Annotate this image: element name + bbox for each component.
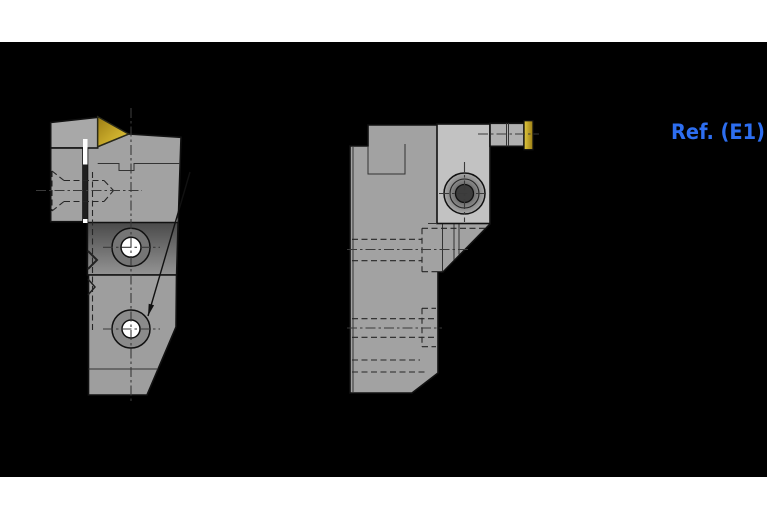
front-gap-dark bbox=[83, 165, 88, 220]
front-gap-white-top bbox=[83, 139, 88, 165]
front-gap-white-bottom bbox=[83, 219, 88, 223]
front-top-bar bbox=[51, 117, 98, 148]
front-rear-block bbox=[51, 148, 83, 222]
technical-drawing-canvas: Ref. (E1) bbox=[0, 0, 767, 523]
insert-tip bbox=[524, 121, 533, 150]
ref-label[interactable]: Ref. (E1) bbox=[671, 120, 765, 144]
